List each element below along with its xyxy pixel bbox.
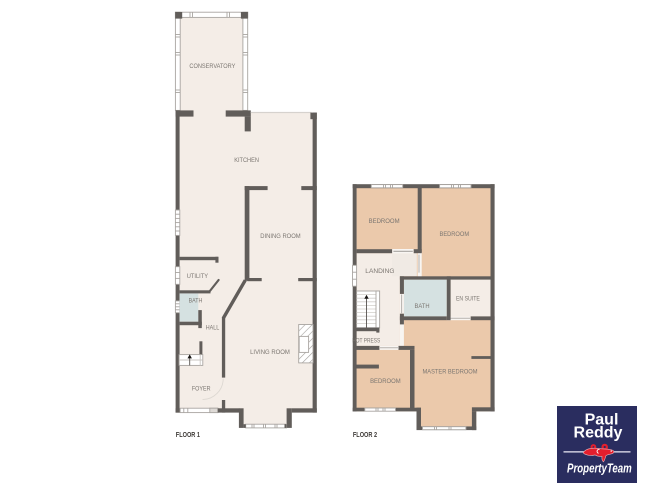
svg-text:BEDROOM: BEDROOM xyxy=(440,231,470,238)
svg-text:BEDROOM: BEDROOM xyxy=(370,378,401,385)
svg-text:Reddy: Reddy xyxy=(574,425,623,442)
svg-text:BATH: BATH xyxy=(189,298,203,305)
svg-text:HOT PRESS: HOT PRESS xyxy=(352,338,380,345)
svg-text:DINING ROOM: DINING ROOM xyxy=(260,233,300,240)
svg-text:FOYER: FOYER xyxy=(192,385,211,392)
svg-text:PropertyTeam: PropertyTeam xyxy=(567,462,632,476)
svg-text:EN SUITE: EN SUITE xyxy=(456,296,480,303)
svg-text:CONSERVATORY: CONSERVATORY xyxy=(189,63,235,70)
svg-text:BATH: BATH xyxy=(415,303,430,310)
svg-text:HALL: HALL xyxy=(206,324,220,331)
svg-text:BEDROOM: BEDROOM xyxy=(369,218,400,225)
svg-text:KITCHEN: KITCHEN xyxy=(234,157,259,164)
svg-text:FLOOR 2: FLOOR 2 xyxy=(353,430,377,439)
svg-text:MASTER BEDROOM: MASTER BEDROOM xyxy=(423,369,478,376)
svg-text:LANDING: LANDING xyxy=(365,268,394,275)
svg-text:FLOOR 1: FLOOR 1 xyxy=(176,430,201,439)
svg-text:UTILITY: UTILITY xyxy=(187,273,208,280)
svg-text:LIVING ROOM: LIVING ROOM xyxy=(250,349,290,356)
